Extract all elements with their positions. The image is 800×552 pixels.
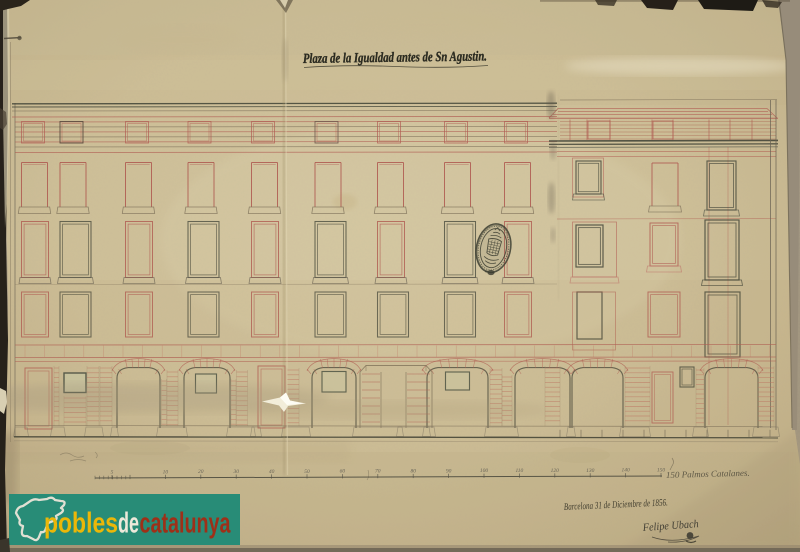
svg-text:Plaza de la Igualdad antes de: Plaza de la Igualdad antes de Sn Agustin… (303, 49, 487, 67)
